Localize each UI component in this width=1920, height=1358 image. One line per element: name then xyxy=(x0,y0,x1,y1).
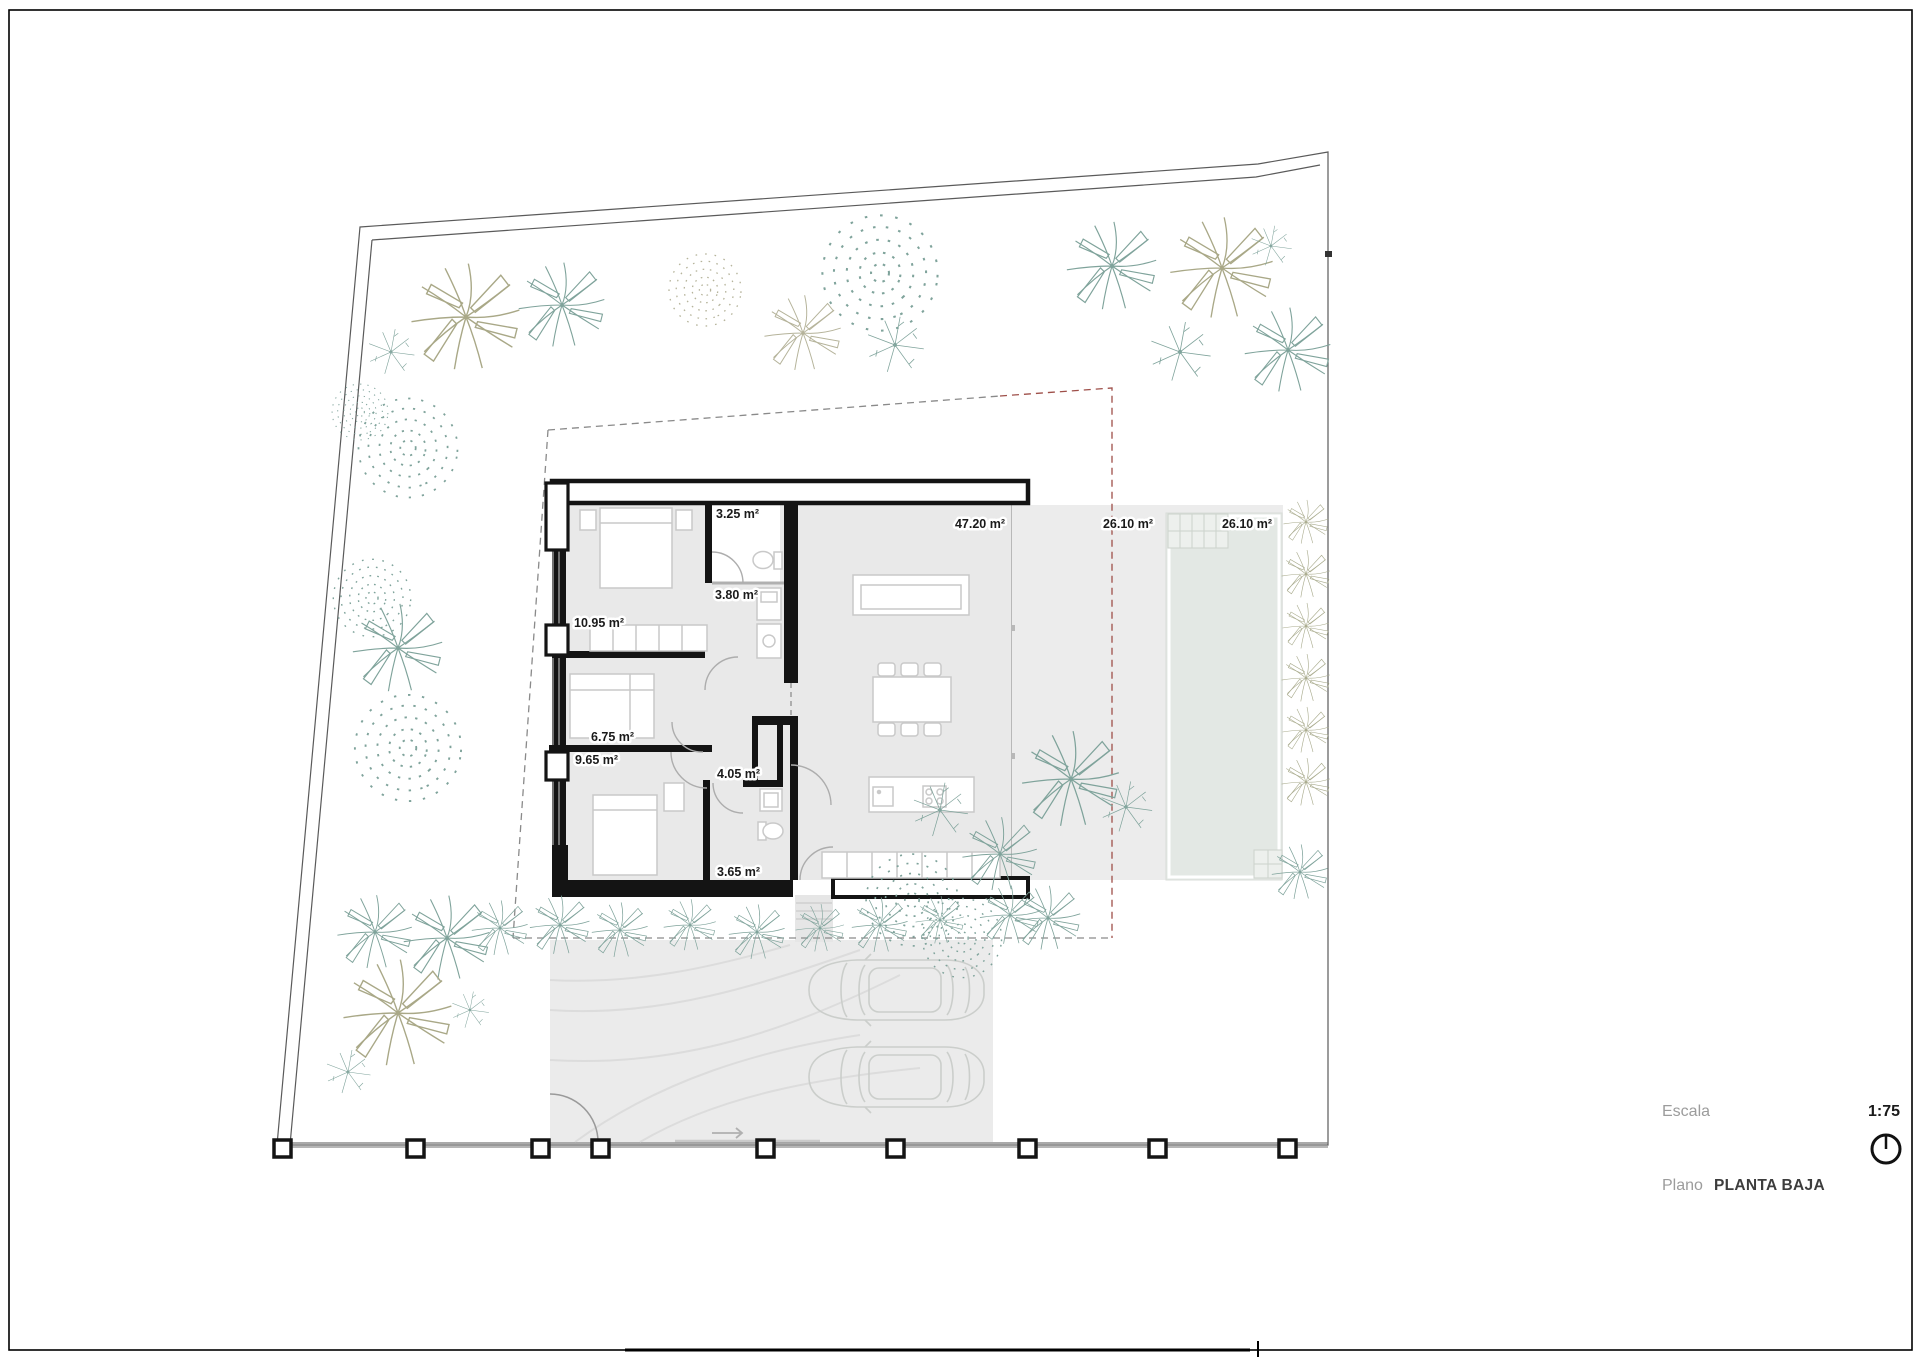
palm-tree xyxy=(353,604,442,691)
palm-tree xyxy=(764,295,840,370)
fence-post xyxy=(887,1140,904,1157)
floor-plan-sheet: 3.25 m² 3.80 m² 10.95 m² 6.75 m² 9.65 m²… xyxy=(0,0,1920,1358)
top-wall xyxy=(552,481,1028,503)
north-indicator-icon xyxy=(1872,1135,1900,1163)
fence-post xyxy=(1019,1140,1036,1157)
fence-post xyxy=(407,1140,424,1157)
nightstand xyxy=(580,510,596,530)
room-area-label: 10.95 m² xyxy=(574,616,624,630)
toilet xyxy=(774,552,782,569)
palm-tree xyxy=(1245,308,1331,392)
palm-tree xyxy=(1067,222,1156,309)
scale-label: Escala xyxy=(1662,1103,1710,1120)
fence-post xyxy=(532,1140,549,1157)
floor-plan-drawing: 3.25 m² 3.80 m² 10.95 m² 6.75 m² 9.65 m²… xyxy=(0,0,1920,1358)
wall-pillar xyxy=(546,752,568,780)
dining-table xyxy=(873,677,951,722)
wall-pillar xyxy=(546,483,568,550)
nightstand xyxy=(664,783,684,811)
fence-post xyxy=(274,1140,291,1157)
fence-post xyxy=(757,1140,774,1157)
chair xyxy=(878,663,895,676)
room-area-label: 47.20 m² xyxy=(955,517,1005,531)
palm-tree xyxy=(1170,217,1272,317)
room-area-label: 3.25 m² xyxy=(716,507,759,521)
tree xyxy=(1151,322,1210,380)
room-area-label: 3.65 m² xyxy=(717,865,760,879)
nightstand xyxy=(676,510,692,530)
swimming-pool xyxy=(1166,513,1282,880)
tree xyxy=(868,317,924,372)
shrub xyxy=(351,391,466,506)
chair xyxy=(924,723,941,736)
palm-tree xyxy=(1283,603,1330,649)
palm-tree xyxy=(337,895,411,968)
palm-tree xyxy=(343,960,451,1066)
plan-name: PLANTA BAJA xyxy=(1714,1177,1825,1194)
room-area-label: 3.80 m² xyxy=(715,588,758,602)
fence-post xyxy=(1279,1140,1296,1157)
shrub xyxy=(346,686,469,809)
shrub xyxy=(663,248,746,331)
tree xyxy=(369,329,414,374)
driveway xyxy=(550,940,993,1142)
bed xyxy=(600,508,672,588)
fence-post xyxy=(592,1140,609,1157)
boundary-survey-tick xyxy=(1325,251,1332,257)
palm-tree xyxy=(1282,654,1330,701)
chair xyxy=(878,723,895,736)
palm-tree xyxy=(519,263,605,347)
room-area-label: 26.10 m² xyxy=(1103,517,1153,531)
bottom-wall xyxy=(552,880,793,897)
room-area-label: 26.10 m² xyxy=(1222,517,1272,531)
room-area-label: 9.65 m² xyxy=(575,753,618,767)
title-block: Escala 1:75 Plano PLANTA BAJA xyxy=(1662,1103,1900,1194)
room-area-label: 6.75 m² xyxy=(591,730,634,744)
palm-tree xyxy=(1283,707,1330,753)
tree xyxy=(452,992,489,1028)
kitchen-sink xyxy=(873,787,893,806)
wall-pillar xyxy=(546,625,568,655)
chair xyxy=(901,723,918,736)
palm-tree xyxy=(411,264,519,370)
bed xyxy=(593,795,657,875)
palm-tree xyxy=(1282,758,1330,805)
shrub xyxy=(813,206,946,339)
palm-tree xyxy=(404,896,490,980)
porch-wall xyxy=(833,878,1028,897)
palm-tree xyxy=(916,896,964,943)
chair xyxy=(901,663,918,676)
palm-tree xyxy=(1283,500,1328,544)
palm-tree xyxy=(472,900,528,955)
plan-label: Plano xyxy=(1662,1177,1703,1194)
palm-tree xyxy=(1282,550,1330,597)
room-area-label: 4.05 m² xyxy=(717,767,760,781)
chair xyxy=(924,663,941,676)
scale-value: 1:75 xyxy=(1868,1103,1900,1120)
bed xyxy=(570,674,654,738)
fence-post xyxy=(1149,1140,1166,1157)
